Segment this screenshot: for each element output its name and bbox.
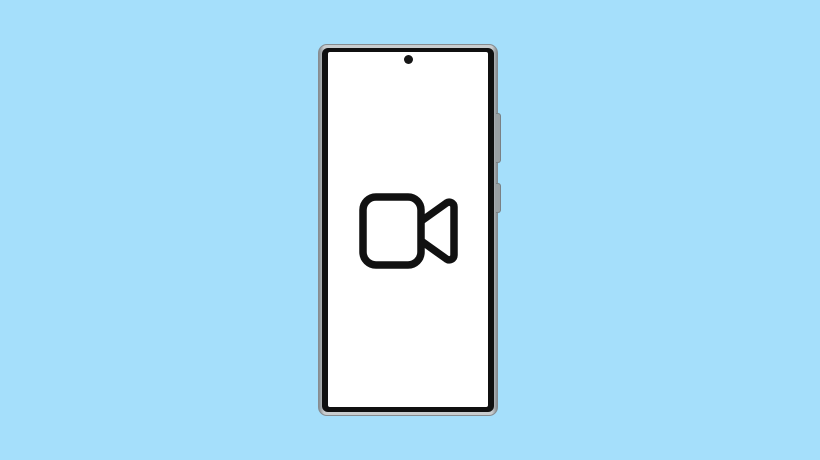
phone-screen <box>328 52 488 407</box>
background <box>0 0 820 460</box>
power-button <box>496 183 501 213</box>
volume-button <box>496 113 501 163</box>
front-camera-icon <box>404 55 413 64</box>
smartphone-illustration <box>318 44 498 416</box>
video-camera-icon <box>356 190 460 274</box>
phone-bezel <box>322 48 494 412</box>
